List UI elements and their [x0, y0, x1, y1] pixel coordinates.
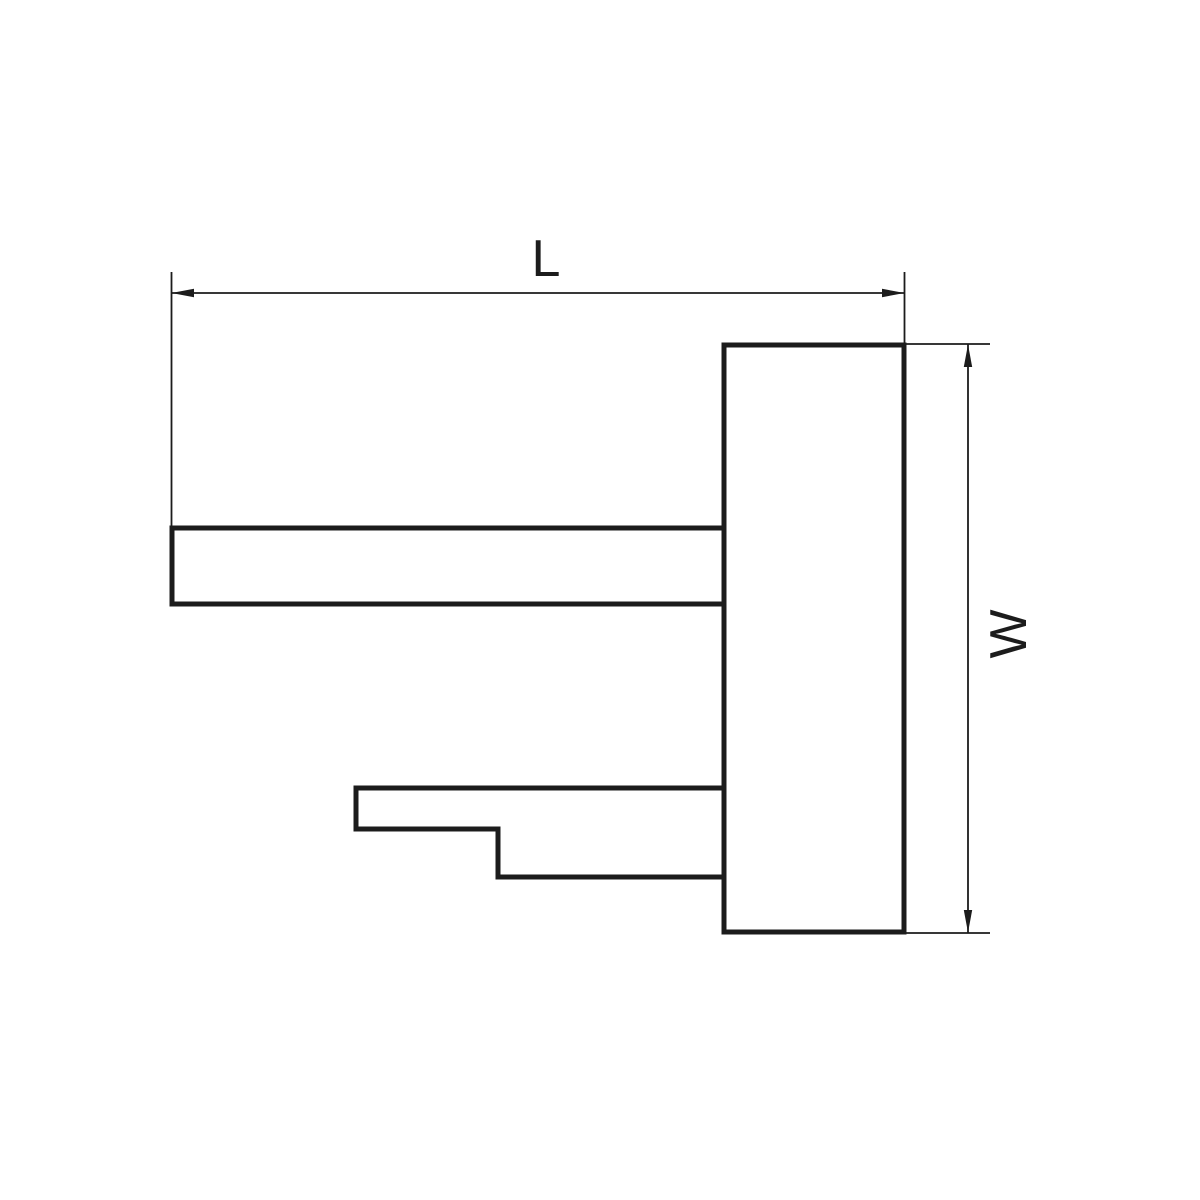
dim-W-arrowhead-top-icon	[964, 345, 972, 368]
upper-prong-outline	[172, 528, 724, 604]
dim-L-arrowhead-right-icon	[882, 289, 905, 297]
technical-drawing-page: L W	[0, 0, 1200, 1200]
body-rectangle-outline	[724, 345, 904, 932]
part-outlines	[172, 345, 904, 932]
technical-drawing-canvas: L W	[0, 0, 1200, 1200]
dim-W-label: W	[980, 609, 1038, 658]
dim-L-arrowhead-left-icon	[172, 289, 195, 297]
dim-L-label: L	[532, 230, 561, 288]
dim-W-arrowhead-bottom-icon	[964, 910, 972, 933]
stepped-prong-outline	[356, 788, 724, 877]
